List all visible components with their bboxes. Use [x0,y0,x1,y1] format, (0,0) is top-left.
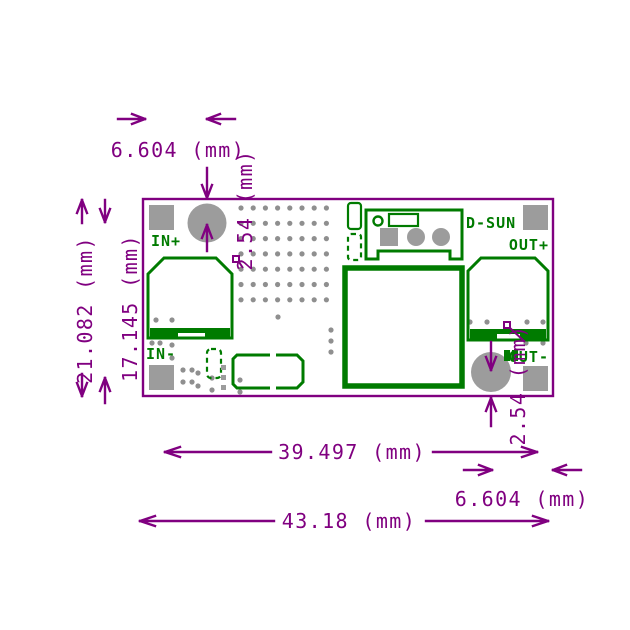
diode-pin-mark-2 [221,375,226,380]
via-dot [328,349,333,354]
via-dot [299,221,304,226]
via-dot [287,251,292,256]
via-dot [263,251,268,256]
dim-top-pad-inset: 6.604 (mm) [111,138,245,162]
via-dot [237,389,242,394]
via-dot [195,370,200,375]
via-dot [524,319,529,324]
via-dot [299,282,304,287]
dim-board-width: 43.18 (mm) [282,509,416,533]
via-dot [169,317,174,322]
dim-top-pad-offset: 2.54 (mm) [233,150,257,271]
dim-arrow-down [202,168,212,198]
diode-pin-mark-3 [221,385,226,390]
via-dot [312,297,317,302]
via-dot [299,236,304,241]
via-dot [275,205,280,210]
via-dot [328,327,333,332]
via-dot [180,367,185,372]
dim-pad-row-span: 17.145 (mm) [118,234,142,382]
via-dot [287,221,292,226]
via-dot [153,317,158,322]
via-dot [484,319,489,324]
via-dot [189,367,194,372]
dim-arrow-up [486,398,496,426]
dim-arrow-up [77,200,87,223]
via-dot [275,236,280,241]
via-dot [312,236,317,241]
via-dot [263,282,268,287]
via-dot [275,297,280,302]
via-dot [195,383,200,388]
via-dot [238,297,243,302]
via-dot [189,379,194,384]
via-dot [263,205,268,210]
via-dot [275,221,280,226]
via-dot [263,297,268,302]
via-dot [312,267,317,272]
dim-bottom-pad-offset: 2.54 (mm) [506,325,530,446]
diode-pin-mark-1 [221,365,226,370]
ic-pad-round-1 [407,228,425,246]
via-dot [287,236,292,241]
via-dot [275,282,280,287]
dim-arrow-right [118,114,145,124]
via-dot [324,267,329,272]
via-dot [251,282,256,287]
via-dot [251,297,256,302]
via-dot [324,236,329,241]
via-dot [299,297,304,302]
label-brand: D-SUN [466,214,516,232]
ic-pad-round-2 [432,228,450,246]
via-dot [328,338,333,343]
via-dot [324,297,329,302]
via-dot [263,221,268,226]
via-dot [324,221,329,226]
via-dot [324,282,329,287]
via-dot [209,387,214,392]
pad-bottom-left [149,365,174,390]
via-dot [312,251,317,256]
ic-pad-square [380,228,398,246]
via-dot [275,251,280,256]
via-dot [312,205,317,210]
dim-arrow-right [464,465,492,475]
via-dot [263,236,268,241]
via-dot [238,282,243,287]
dim-arrow-up [100,378,110,403]
label-in-minus: IN- [146,345,176,363]
pad-top-left [149,205,174,230]
dim-arrow-down [100,200,110,222]
via-dot [180,379,185,384]
via-dot [263,267,268,272]
via-dot [299,267,304,272]
dim-bottom-pad-inset: 6.604 (mm) [455,487,589,511]
via-dot [312,221,317,226]
via-dot [299,205,304,210]
via-dot [275,267,280,272]
via-dot [287,205,292,210]
dim-pad-span-width: 39.497 (mm) [278,440,426,464]
via-dot [299,251,304,256]
label-in-plus: IN+ [151,232,181,250]
dim-arrow-left [553,465,581,475]
via-dot [287,282,292,287]
via-dot [275,314,280,319]
dim-board-height: 21.082 (mm) [73,236,97,384]
via-dot [287,267,292,272]
dim-arrow-left [207,114,235,124]
via-dot [324,205,329,210]
via-dot [287,297,292,302]
diagram-canvas: IN+ IN- OUT+ OUT- D-SUN 6.604 (mm) 2.54 … [0,0,630,630]
via-dot [324,251,329,256]
pad-top-right [523,205,548,230]
pcb-dimension-diagram: IN+ IN- OUT+ OUT- D-SUN 6.604 (mm) 2.54 … [0,0,630,630]
via-dot [237,377,242,382]
via-dot [540,319,545,324]
label-out-plus: OUT+ [509,236,549,254]
via-dot [312,282,317,287]
